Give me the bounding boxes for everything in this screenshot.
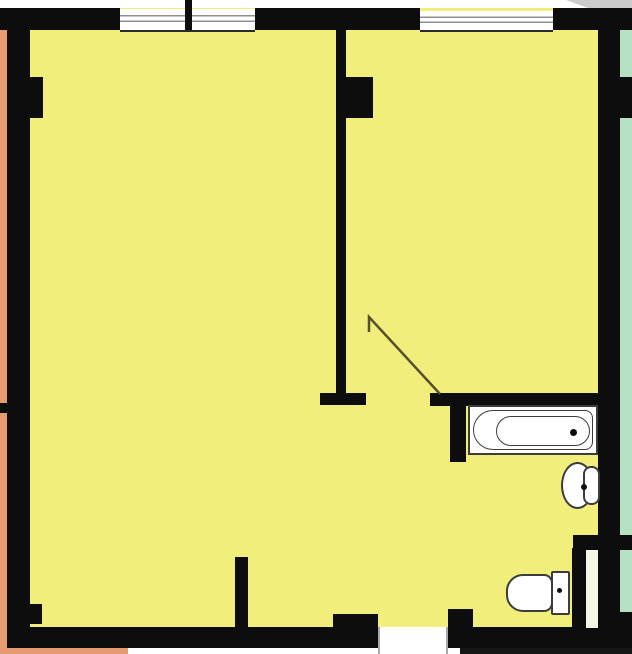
bathtub-drain	[570, 429, 577, 436]
entrance-door-opening	[378, 627, 448, 654]
window-mullion	[185, 0, 192, 30]
right-wall	[598, 8, 620, 648]
floor-plan-canvas	[0, 0, 632, 654]
top-wall-right	[553, 8, 632, 30]
wc-wall	[572, 548, 586, 628]
bottom-wall-left	[7, 627, 378, 648]
toilet-tank-dot	[557, 588, 562, 593]
apartment-floor	[7, 8, 622, 648]
left-wall-step	[28, 604, 42, 624]
duct-shaft-strip	[586, 550, 598, 628]
sink-drain	[581, 484, 587, 490]
top-wall-mid	[255, 8, 420, 30]
entrance-threshold-right	[448, 609, 473, 648]
neighbor-left-wall-tick	[0, 403, 8, 413]
toilet-bowl	[506, 574, 553, 612]
toilet-tank	[551, 571, 570, 615]
neighbor-left-strip	[0, 28, 7, 654]
left-wall	[7, 8, 30, 648]
partition-wall	[336, 30, 346, 395]
left-wall-pier	[30, 77, 43, 118]
window-top-right	[420, 11, 553, 32]
partition-foot	[320, 393, 366, 405]
outside-bottom-dark	[460, 648, 632, 654]
neighbor-right-wall-tick	[620, 77, 632, 118]
partition-pier	[346, 77, 373, 118]
wall-stub-bottom	[235, 557, 248, 628]
bathtub	[468, 405, 598, 455]
entrance-threshold-left	[333, 614, 378, 648]
bottom-wall-right	[448, 627, 632, 648]
tub-left-wall-stub	[450, 405, 466, 462]
